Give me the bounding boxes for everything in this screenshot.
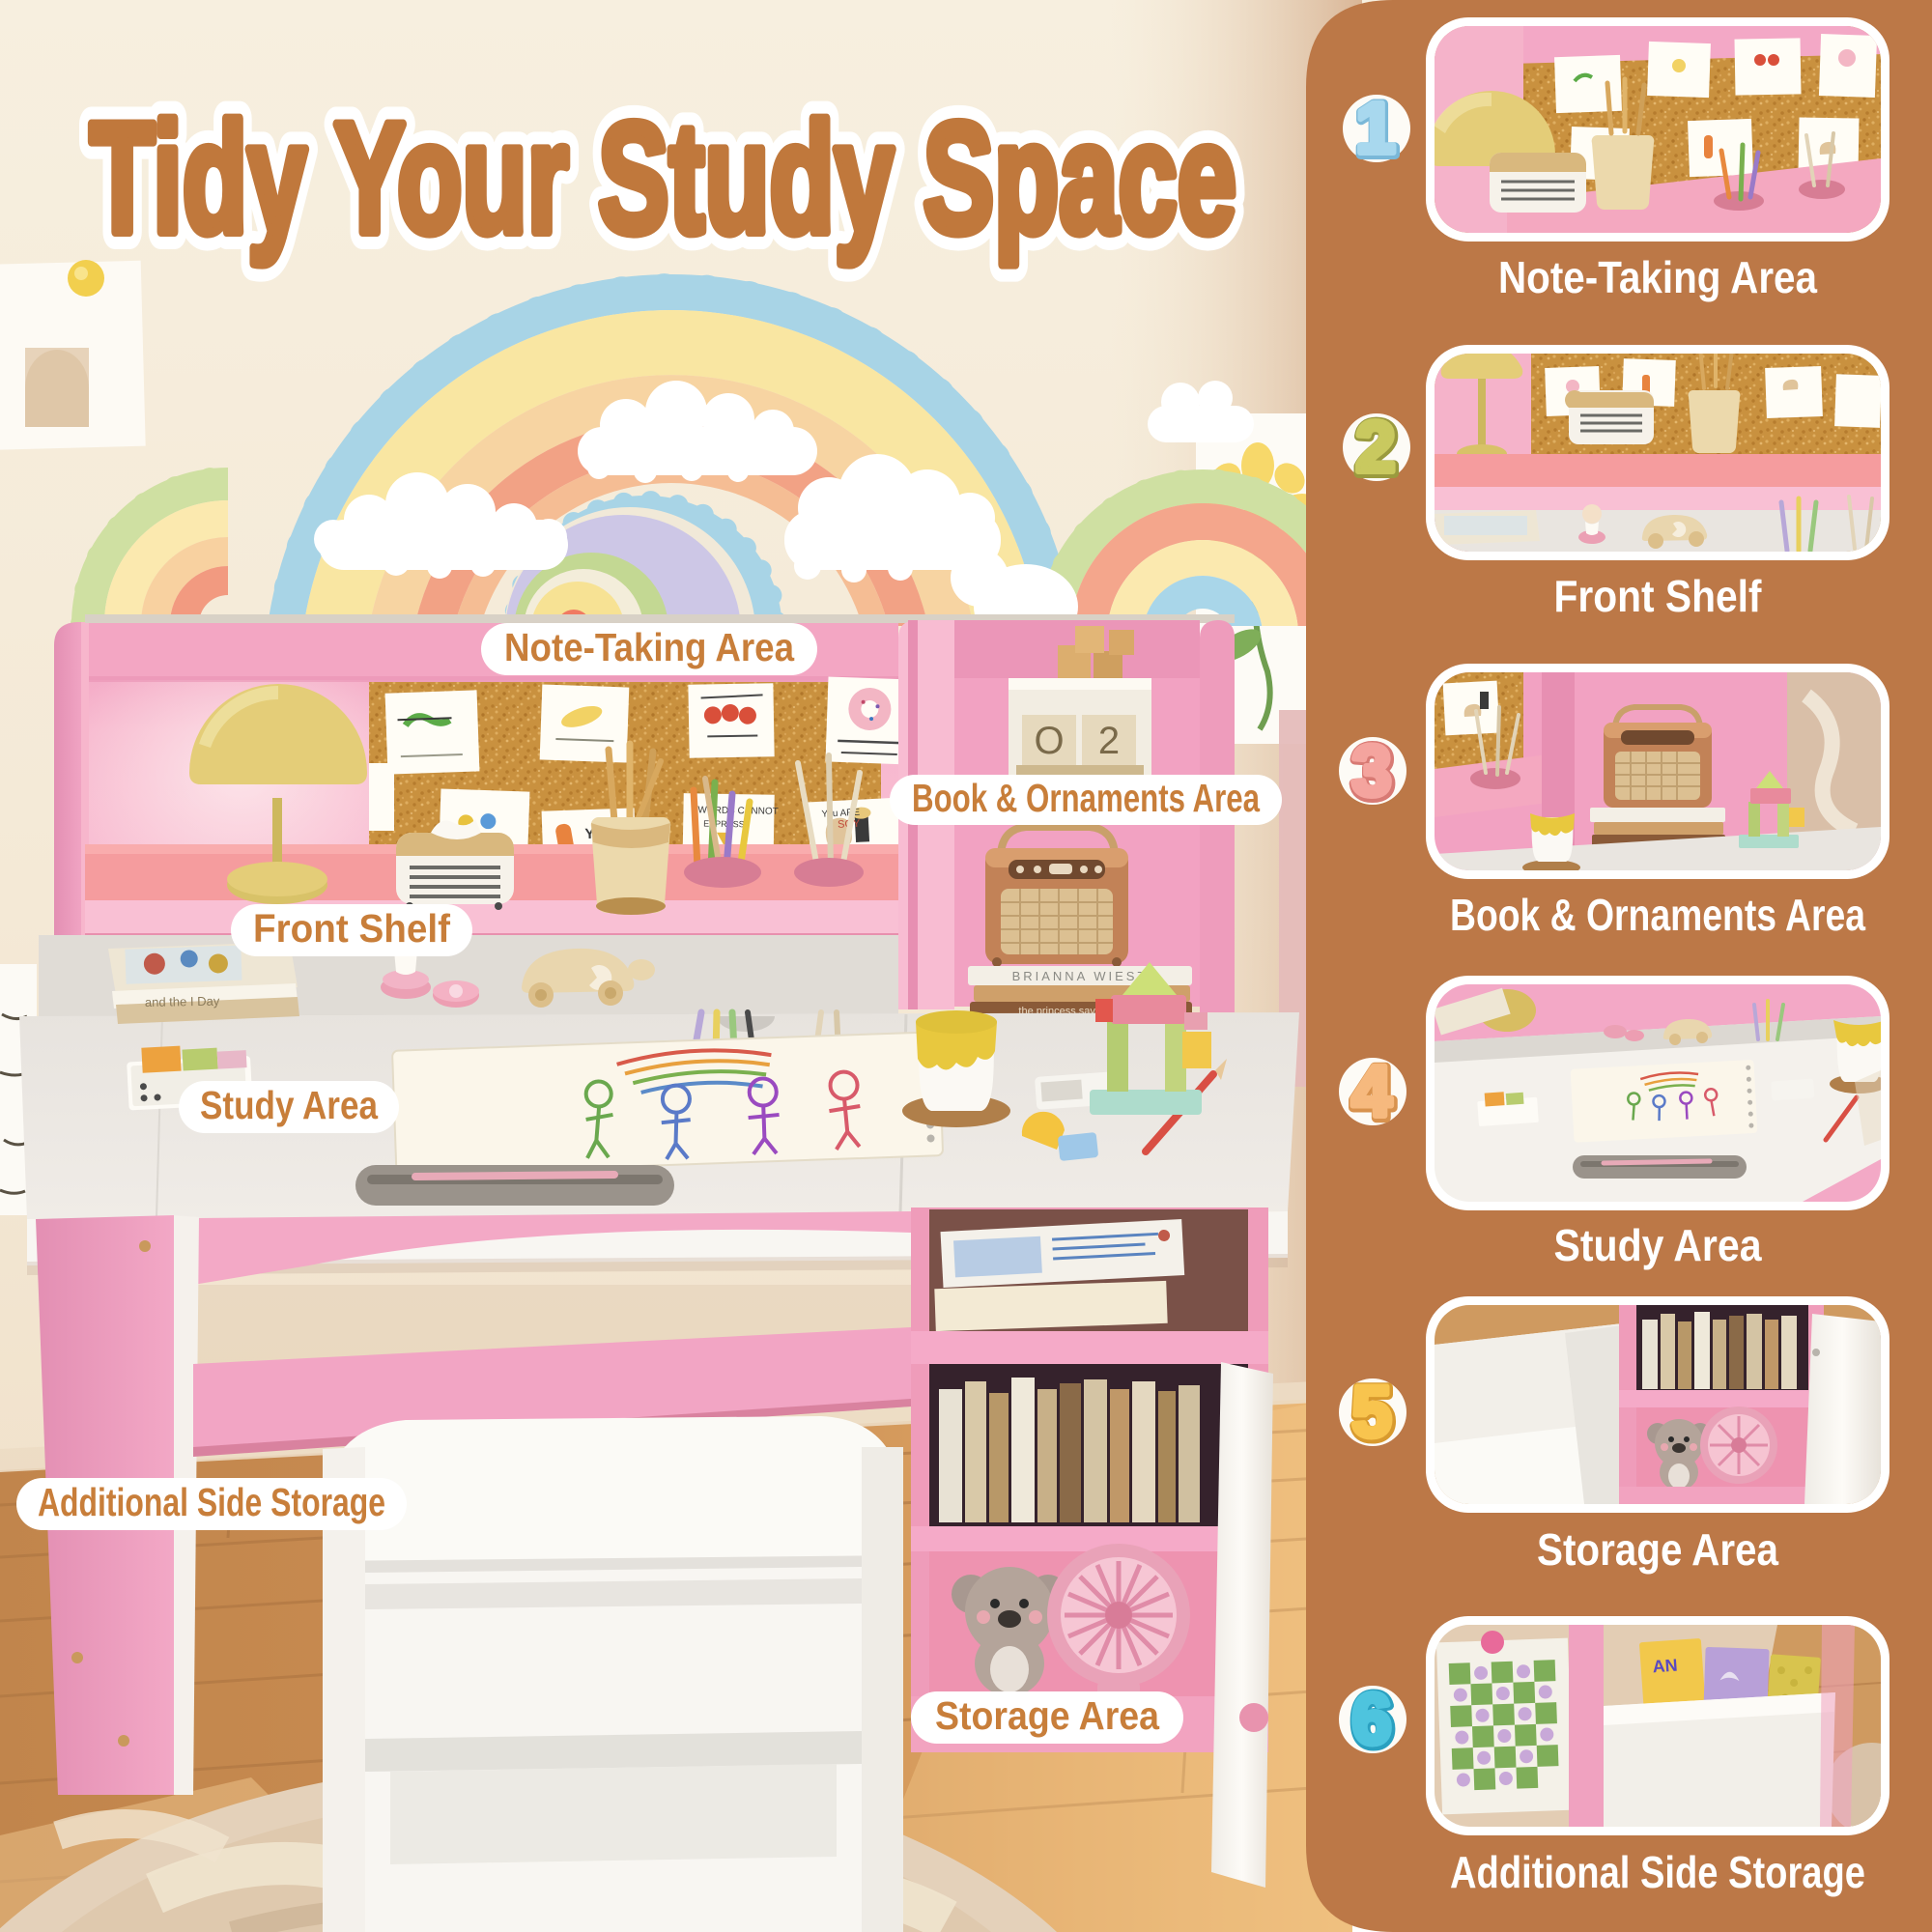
svg-text:4: 4 xyxy=(1351,1051,1391,1131)
svg-text:6: 6 xyxy=(1351,1679,1391,1759)
svg-text:Book & Ornaments Area: Book & Ornaments Area xyxy=(912,776,1261,820)
svg-text:5: 5 xyxy=(1351,1372,1391,1452)
svg-text:Book & Ornaments Area: Book & Ornaments Area xyxy=(1450,890,1865,940)
svg-text:2: 2 xyxy=(1098,720,1120,762)
svg-text:Study Area: Study Area xyxy=(1554,1220,1762,1270)
svg-text:and the I Day: and the I Day xyxy=(145,994,220,1009)
svg-text:3: 3 xyxy=(1351,730,1391,810)
svg-text:Front Shelf: Front Shelf xyxy=(1554,571,1763,621)
svg-text:Storage Area: Storage Area xyxy=(1537,1524,1778,1575)
svg-text:Storage Area: Storage Area xyxy=(935,1693,1160,1738)
svg-text:Note-Taking Area: Note-Taking Area xyxy=(504,625,795,669)
svg-text:Study Area: Study Area xyxy=(200,1083,379,1127)
svg-text:Tidy Your Study Space: Tidy Your Study Space xyxy=(90,91,1236,266)
svg-text:2: 2 xyxy=(1355,407,1395,487)
svg-text:BRIANNA WIEST: BRIANNA WIEST xyxy=(1012,969,1149,983)
svg-text:AN: AN xyxy=(1652,1656,1678,1677)
svg-text:1: 1 xyxy=(1355,88,1395,168)
svg-text:Additional Side Storage: Additional Side Storage xyxy=(38,1480,385,1524)
svg-text:Note-Taking Area: Note-Taking Area xyxy=(1498,252,1817,302)
svg-text:O: O xyxy=(1034,720,1064,762)
svg-text:Additional Side Storage: Additional Side Storage xyxy=(1450,1847,1865,1897)
svg-text:Front Shelf: Front Shelf xyxy=(253,906,450,951)
